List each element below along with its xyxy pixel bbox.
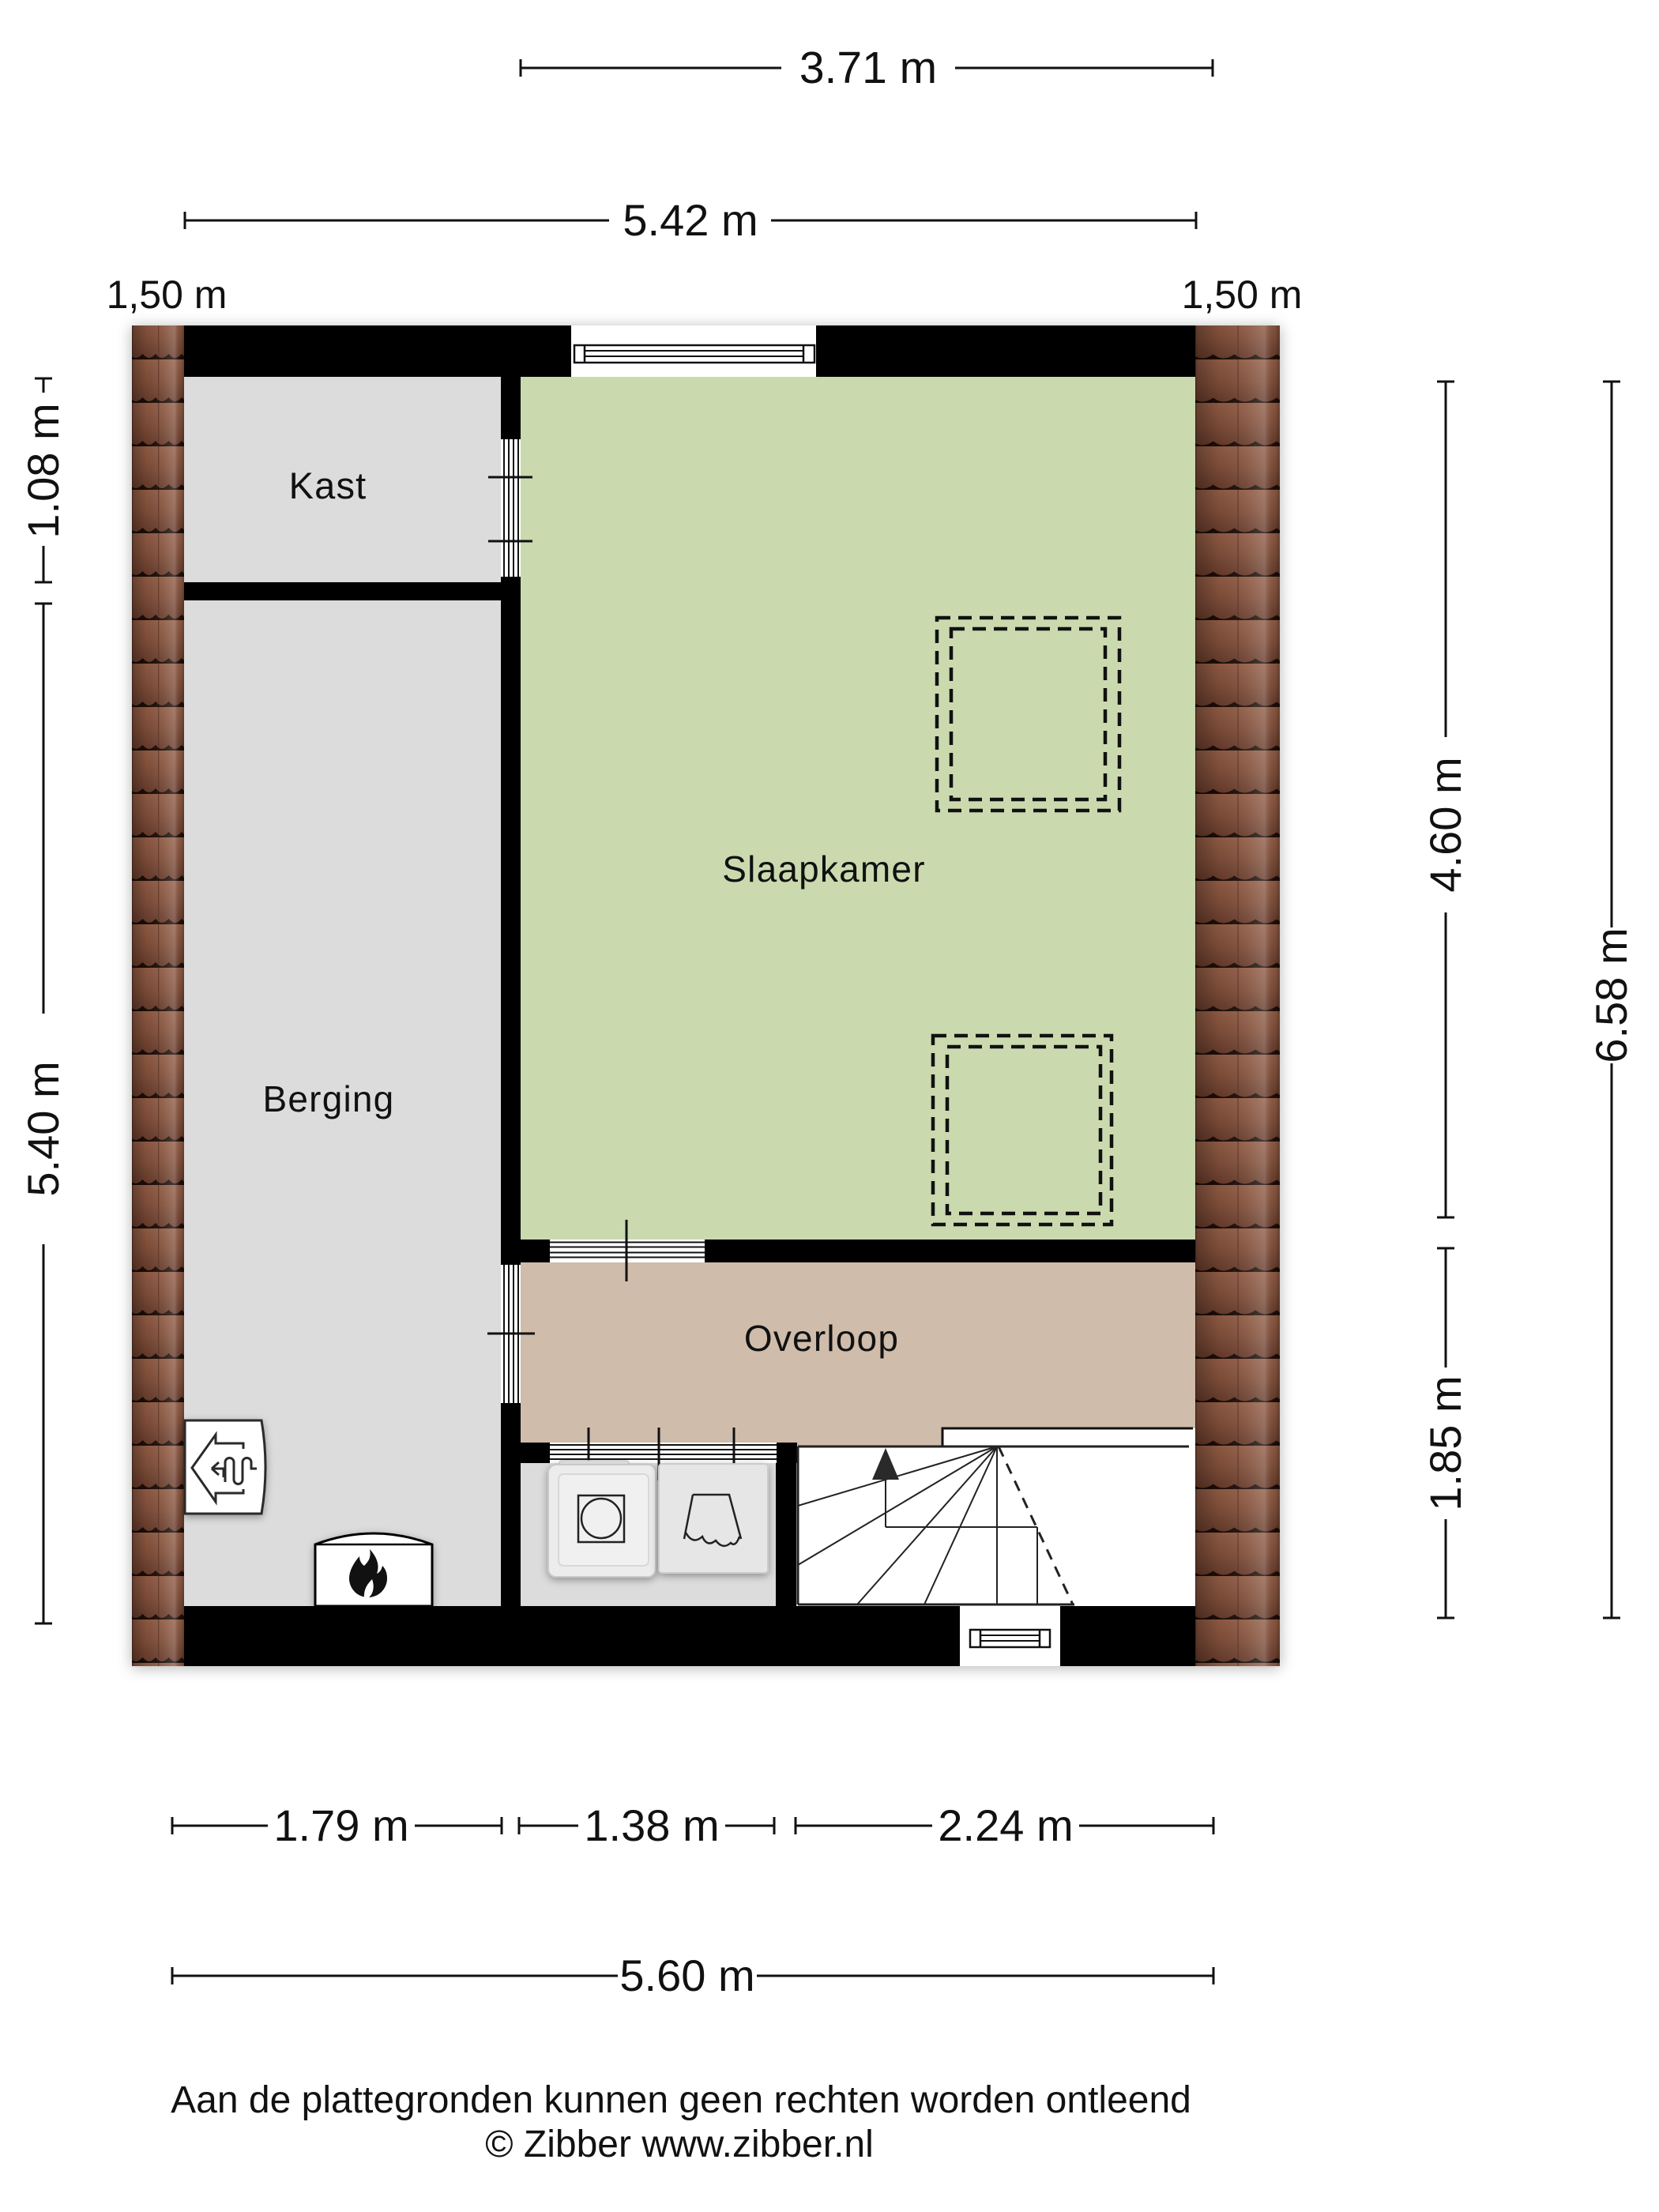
svg-text:Slaapkamer: Slaapkamer [722, 848, 925, 890]
svg-text:6.58 m: 6.58 m [1586, 927, 1636, 1063]
svg-text:1,50 m: 1,50 m [107, 273, 228, 317]
svg-text:1.38 m: 1.38 m [584, 1800, 719, 1850]
svg-text:1.85 m: 1.85 m [1420, 1375, 1470, 1510]
svg-text:5.42 m: 5.42 m [623, 195, 758, 245]
svg-text:1.08 m: 1.08 m [18, 403, 68, 538]
svg-text:5.40 m: 5.40 m [18, 1061, 68, 1196]
svg-text:5.60 m: 5.60 m [619, 1951, 754, 2000]
svg-text:4.60 m: 4.60 m [1420, 757, 1470, 892]
svg-text:Kast: Kast [289, 465, 367, 506]
svg-text:1,50 m: 1,50 m [1182, 273, 1303, 317]
svg-text:© Zibber www.zibber.nl: © Zibber www.zibber.nl [485, 2124, 874, 2165]
svg-text:2.24 m: 2.24 m [938, 1800, 1073, 1850]
svg-text:Berging: Berging [263, 1078, 395, 1119]
svg-text:3.71 m: 3.71 m [799, 43, 937, 93]
svg-text:Overloop: Overloop [744, 1318, 899, 1359]
svg-text:1.79 m: 1.79 m [273, 1800, 408, 1850]
svg-text:Aan de plattegronden kunnen ge: Aan de plattegronden kunnen geen rechten… [171, 2079, 1191, 2121]
